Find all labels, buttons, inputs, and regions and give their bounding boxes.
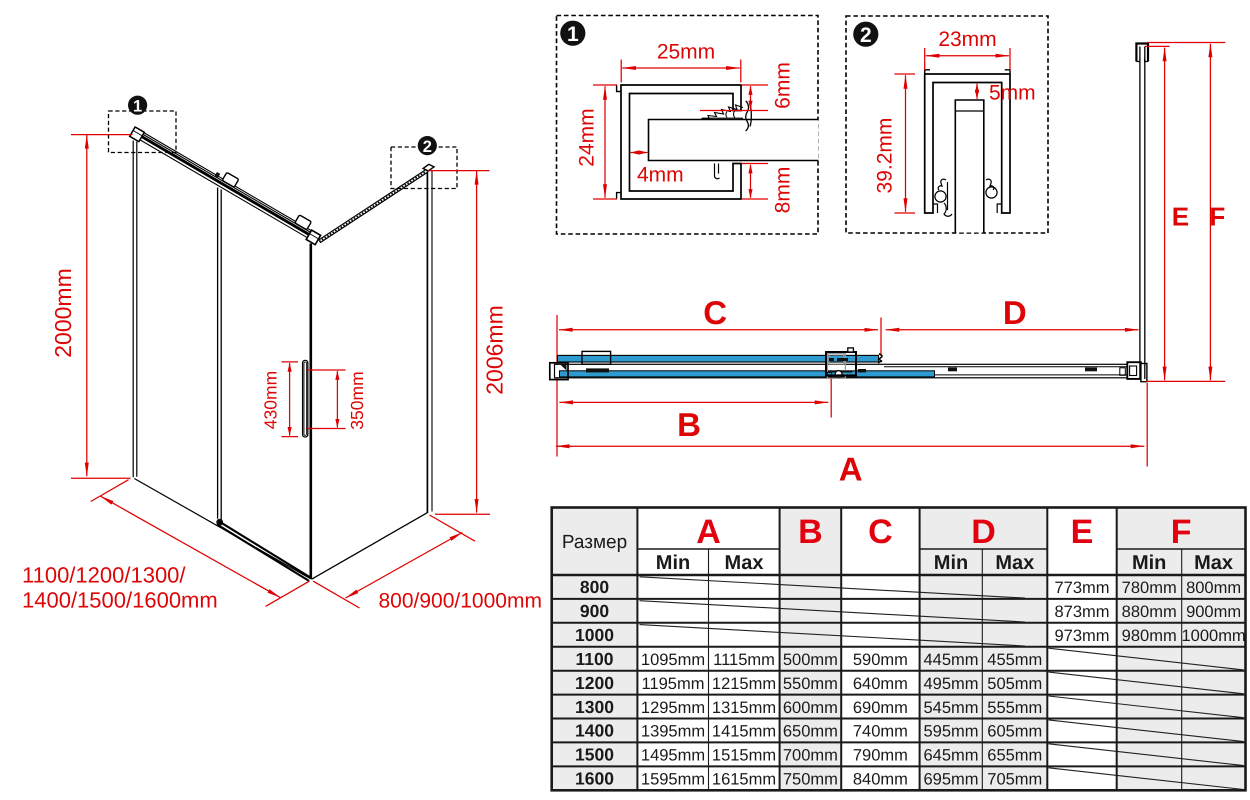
svg-text:695mm: 695mm (923, 771, 978, 789)
svg-text:650mm: 650mm (783, 723, 838, 741)
svg-text:D: D (971, 513, 996, 551)
svg-text:1495mm: 1495mm (641, 747, 705, 765)
svg-text:Max: Max (995, 552, 1034, 574)
svg-text:23mm: 23mm (938, 28, 996, 51)
svg-text:1200: 1200 (575, 673, 614, 693)
svg-text:980mm: 980mm (1122, 627, 1177, 645)
svg-text:C: C (703, 294, 727, 331)
svg-text:600mm: 600mm (783, 699, 838, 717)
svg-text:Max: Max (725, 552, 764, 574)
svg-text:773mm: 773mm (1054, 579, 1109, 597)
svg-text:1000: 1000 (575, 625, 614, 645)
svg-text:640mm: 640mm (853, 675, 908, 693)
svg-text:5mm: 5mm (989, 82, 1036, 105)
svg-text:800/900/1000mm: 800/900/1000mm (379, 590, 542, 613)
svg-text:1400/1500/1600mm: 1400/1500/1600mm (22, 588, 218, 613)
svg-text:590mm: 590mm (853, 651, 908, 669)
svg-text:655mm: 655mm (987, 747, 1042, 765)
svg-text:F: F (1171, 513, 1192, 551)
svg-text:500mm: 500mm (783, 651, 838, 669)
svg-text:690mm: 690mm (853, 699, 908, 717)
svg-text:800: 800 (580, 577, 609, 597)
svg-text:6mm: 6mm (772, 62, 795, 109)
svg-text:Min: Min (934, 552, 968, 574)
svg-text:1600: 1600 (575, 769, 614, 789)
svg-text:1395mm: 1395mm (641, 723, 705, 741)
svg-text:Min: Min (1132, 552, 1166, 574)
svg-text:800mm: 800mm (1186, 579, 1241, 597)
svg-text:430mm: 430mm (261, 371, 281, 429)
svg-text:B: B (677, 406, 701, 443)
svg-text:840mm: 840mm (853, 771, 908, 789)
svg-text:1515mm: 1515mm (712, 747, 776, 765)
svg-text:1115mm: 1115mm (713, 651, 775, 669)
svg-text:700mm: 700mm (783, 747, 838, 765)
svg-text:1595mm: 1595mm (641, 771, 705, 789)
svg-text:B: B (798, 513, 823, 551)
svg-text:Размер: Размер (562, 532, 627, 553)
svg-text:A: A (839, 451, 863, 488)
svg-text:900mm: 900mm (1186, 603, 1241, 621)
svg-text:A: A (696, 513, 721, 551)
svg-text:740mm: 740mm (853, 723, 908, 741)
svg-text:555mm: 555mm (987, 699, 1042, 717)
svg-text:1: 1 (133, 97, 142, 115)
svg-text:1100/1200/1300/: 1100/1200/1300/ (22, 563, 186, 588)
svg-text:750mm: 750mm (783, 771, 838, 789)
svg-text:605mm: 605mm (987, 723, 1042, 741)
svg-text:24mm: 24mm (576, 108, 599, 166)
svg-text:1: 1 (567, 23, 579, 46)
svg-text:F: F (1209, 202, 1225, 232)
svg-text:E: E (1172, 202, 1189, 232)
svg-text:880mm: 880mm (1122, 603, 1177, 621)
svg-text:4mm: 4mm (637, 164, 684, 187)
svg-text:545mm: 545mm (923, 699, 978, 717)
svg-text:1195mm: 1195mm (642, 675, 705, 693)
svg-text:1295mm: 1295mm (641, 699, 705, 717)
svg-text:25mm: 25mm (657, 41, 715, 64)
svg-text:1500: 1500 (575, 745, 614, 765)
svg-text:1315mm: 1315mm (712, 699, 776, 717)
svg-text:2006mm: 2006mm (482, 305, 508, 394)
svg-text:D: D (1003, 294, 1027, 331)
svg-text:8mm: 8mm (772, 167, 795, 214)
svg-text:1615mm: 1615mm (712, 771, 776, 789)
svg-text:1215mm: 1215mm (712, 675, 776, 693)
svg-text:455mm: 455mm (987, 651, 1042, 669)
svg-text:E: E (1071, 513, 1094, 551)
svg-text:505mm: 505mm (987, 675, 1042, 693)
svg-text:1400: 1400 (575, 721, 614, 741)
svg-text:900: 900 (580, 601, 609, 621)
svg-text:495mm: 495mm (923, 675, 978, 693)
svg-text:1300: 1300 (575, 697, 614, 717)
svg-text:1415mm: 1415mm (712, 723, 776, 741)
svg-text:2: 2 (423, 138, 432, 156)
svg-text:705mm: 705mm (987, 771, 1042, 789)
svg-text:780mm: 780mm (1122, 579, 1177, 597)
svg-text:39.2mm: 39.2mm (874, 118, 897, 194)
svg-text:973mm: 973mm (1054, 627, 1109, 645)
svg-text:1000mm: 1000mm (1181, 627, 1245, 645)
svg-text:C: C (868, 513, 893, 551)
svg-text:445mm: 445mm (923, 651, 978, 669)
svg-text:Max: Max (1194, 552, 1233, 574)
svg-text:645mm: 645mm (923, 747, 978, 765)
svg-text:2000mm: 2000mm (50, 268, 76, 357)
svg-text:550mm: 550mm (783, 675, 838, 693)
svg-text:790mm: 790mm (853, 747, 908, 765)
svg-text:1095mm: 1095mm (641, 651, 705, 669)
svg-text:1100: 1100 (576, 649, 614, 669)
svg-text:2: 2 (860, 24, 872, 47)
svg-text:873mm: 873mm (1054, 603, 1109, 621)
svg-text:Min: Min (656, 552, 690, 574)
svg-text:595mm: 595mm (923, 723, 978, 741)
svg-text:350mm: 350mm (347, 371, 367, 429)
